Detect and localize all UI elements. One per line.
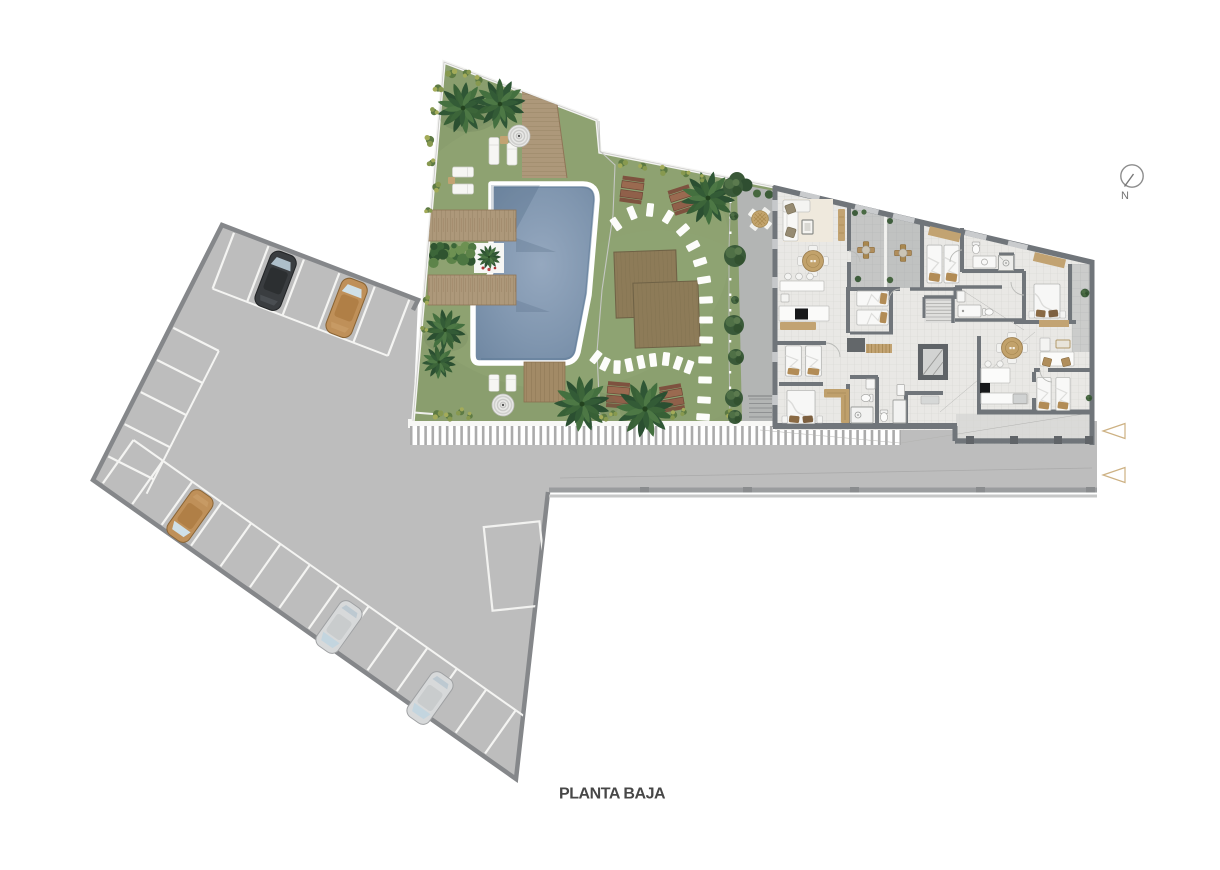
svg-text:PLANTA BAJA: PLANTA BAJA	[559, 786, 666, 803]
svg-text:N: N	[1121, 190, 1129, 202]
